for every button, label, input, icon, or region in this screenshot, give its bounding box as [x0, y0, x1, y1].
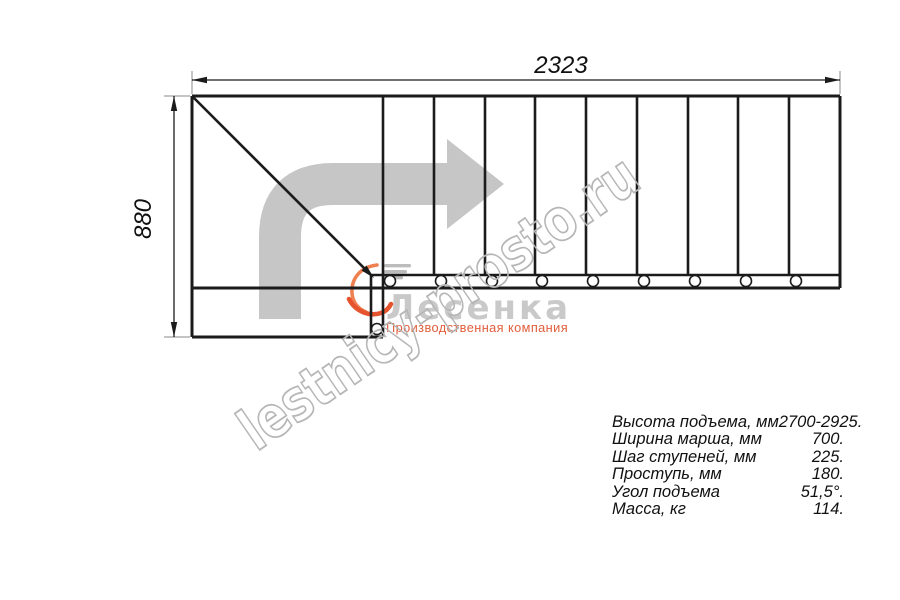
spec-label: Проступь, мм [612, 466, 722, 483]
spec-row: Ширина марша, мм 700. [612, 431, 844, 448]
spec-row: Высота подъема, мм 2700-2925. [612, 414, 844, 431]
spec-row: Шаг ступеней, мм 225. [612, 449, 844, 466]
spec-value: 114. [813, 501, 844, 518]
stair-drawing-page: 2323 880 Лесенка Производственная компан… [0, 0, 900, 600]
spec-label: Шаг ступеней, мм [612, 449, 756, 466]
spec-label: Высота подъема, мм [612, 414, 779, 431]
spec-row: Угол подъема 51,5°. [612, 484, 844, 501]
spec-label: Ширина марша, мм [612, 431, 762, 448]
spec-row: Масса, кг 114. [612, 501, 844, 518]
spec-label: Угол подъема [612, 484, 720, 501]
spec-value: 180. [812, 466, 844, 483]
spec-row: Проступь, мм 180. [612, 466, 844, 483]
spec-label: Масса, кг [612, 501, 686, 518]
dim-height-label: 880 [130, 198, 157, 239]
spec-value: 700. [812, 431, 844, 448]
dim-width-label: 2323 [533, 52, 588, 79]
spec-value: 51,5°. [801, 484, 844, 501]
direction-arrow-head [447, 139, 504, 229]
spec-value: 225. [812, 449, 844, 466]
spec-table: Высота подъема, мм 2700-2925. Ширина мар… [612, 414, 844, 518]
spec-value: 2700-2925. [779, 414, 863, 431]
